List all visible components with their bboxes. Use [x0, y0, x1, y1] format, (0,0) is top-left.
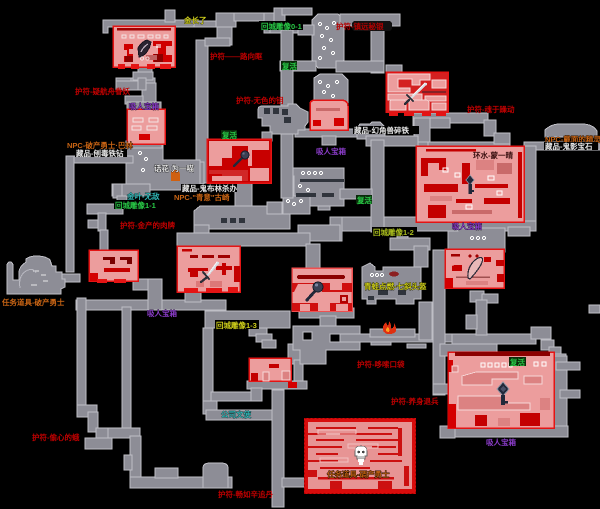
- svg-text:护符-魂于躁动: 护符-魂于躁动: [467, 104, 515, 114]
- svg-text:复活: 复活: [356, 195, 372, 205]
- svg-text:任务道具-碉产勇士: 任务道具-碉产勇士: [326, 469, 390, 479]
- svg-text:藏品-鬼影宝石: 藏品-鬼影宝石: [545, 141, 593, 151]
- svg-text:护符-养身退兵: 护符-养身退兵: [391, 396, 439, 406]
- svg-text:吸人宝箱: 吸人宝箱: [129, 101, 159, 111]
- svg-text:吸人宝箱: 吸人宝箱: [486, 437, 516, 447]
- svg-text:回城雕像0-1: 回城雕像0-1: [261, 21, 302, 31]
- svg-text:吸人宝箱: 吸人宝箱: [147, 308, 177, 318]
- svg-text:护符-偷心的蛾: 护符-偷心的蛾: [32, 432, 80, 442]
- svg-text:护符-畅如辛追丹: 护符-畅如辛追丹: [218, 489, 273, 499]
- svg-text:任务道具-破产勇士: 任务道具-破产勇士: [1, 297, 65, 307]
- svg-text:护符——路向眶: 护符——路向眶: [210, 51, 263, 61]
- svg-text:金叶-无敌: 金叶-无敌: [126, 191, 160, 201]
- svg-text:护符-疑航舟眷妖: 护符-疑航舟眷妖: [75, 86, 130, 96]
- svg-text:护符-金产的肉牌: 护符-金产的肉牌: [120, 220, 175, 230]
- svg-text:吸人宝箱: 吸人宝箱: [316, 146, 346, 156]
- svg-text:护符-哆嗦口袋: 护符-哆嗦口袋: [357, 359, 405, 369]
- svg-text:话花-为一喵: 话花-为一喵: [154, 163, 194, 173]
- svg-text:藏品-幻角兽碎铁: 藏品-幻角兽碎铁: [354, 125, 409, 135]
- svg-text:公司文使: 公司文使: [221, 409, 251, 419]
- svg-text:青蛙点燃-七斜头盔: 青蛙点燃-七斜头盔: [364, 281, 427, 291]
- svg-text:金长了: 金长了: [183, 15, 207, 25]
- svg-text:环水-蒙一晴: 环水-蒙一晴: [473, 150, 513, 160]
- svg-text:回城雕像1-3: 回城雕像1-3: [216, 320, 257, 330]
- svg-text:复活: 复活: [509, 357, 525, 367]
- svg-text:护符-镇远秘银: 护符-镇远秘银: [336, 21, 384, 31]
- svg-text:藏品-鬼布林杀办: 藏品-鬼布林杀办: [182, 183, 237, 193]
- svg-text:回城雕像1-1: 回城雕像1-1: [115, 200, 156, 210]
- svg-text:NPC-"青意"古崎: NPC-"青意"古崎: [174, 192, 230, 202]
- svg-text:回城雕像1-2: 回城雕像1-2: [373, 227, 414, 237]
- svg-text:藏品-刨毒铁钻: 藏品-刨毒铁钻: [76, 148, 124, 158]
- svg-text:吸人宝箱: 吸人宝箱: [452, 221, 482, 231]
- svg-text:复活: 复活: [221, 130, 237, 140]
- svg-text:护符-无色的钥: 护符-无色的钥: [236, 95, 284, 105]
- svg-text:复活: 复活: [281, 61, 297, 71]
